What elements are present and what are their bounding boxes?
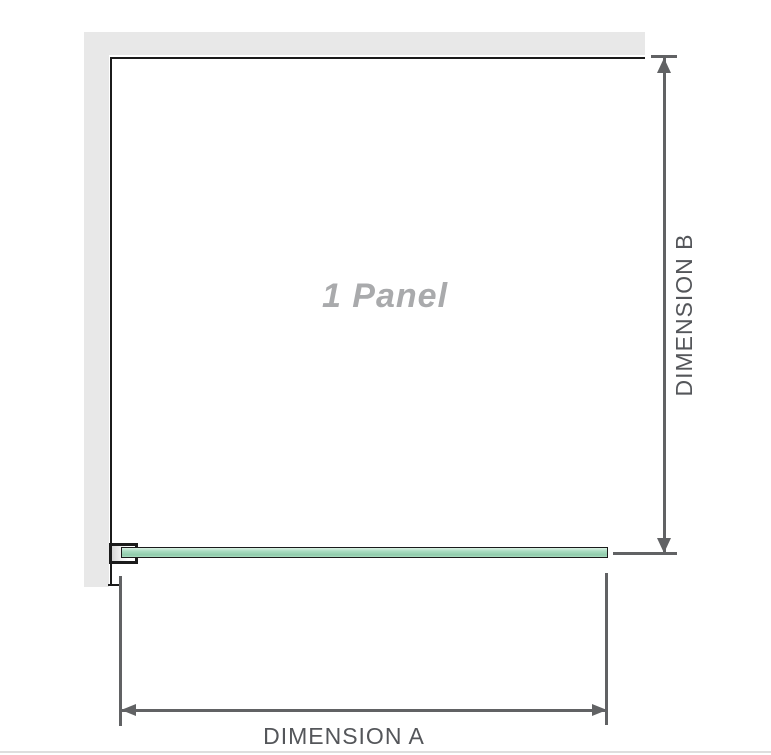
panel-left-edge	[110, 57, 112, 543]
panel-count-label: 1 Panel	[285, 277, 485, 316]
dimension-a-arrow-right-icon	[592, 704, 607, 716]
dimension-a-label: DIMENSION A	[244, 723, 444, 750]
dimension-b-label: DIMENSION B	[671, 215, 697, 415]
dimension-a-arrow-left-icon	[121, 704, 136, 716]
wall-bottom-foot-line	[108, 584, 119, 586]
wall-lower-edge	[110, 564, 112, 586]
dimension-b-arrow-up-icon	[657, 58, 671, 73]
dimension-b-arrow-down-icon	[657, 538, 671, 553]
shower-panel-diagram: 1 Panel DIMENSION B DIMENSION A	[0, 0, 771, 755]
dimension-a-line	[121, 709, 607, 712]
wall-top-strip	[84, 32, 645, 55]
glass-panel	[121, 547, 608, 558]
dimension-b-bottom-tick	[613, 552, 677, 555]
panel-top-edge	[110, 57, 645, 59]
dimension-a-right-extension	[605, 573, 608, 725]
page-bottom-rule	[0, 751, 771, 753]
dimension-b-line	[663, 58, 666, 553]
wall-left-strip	[84, 32, 109, 587]
